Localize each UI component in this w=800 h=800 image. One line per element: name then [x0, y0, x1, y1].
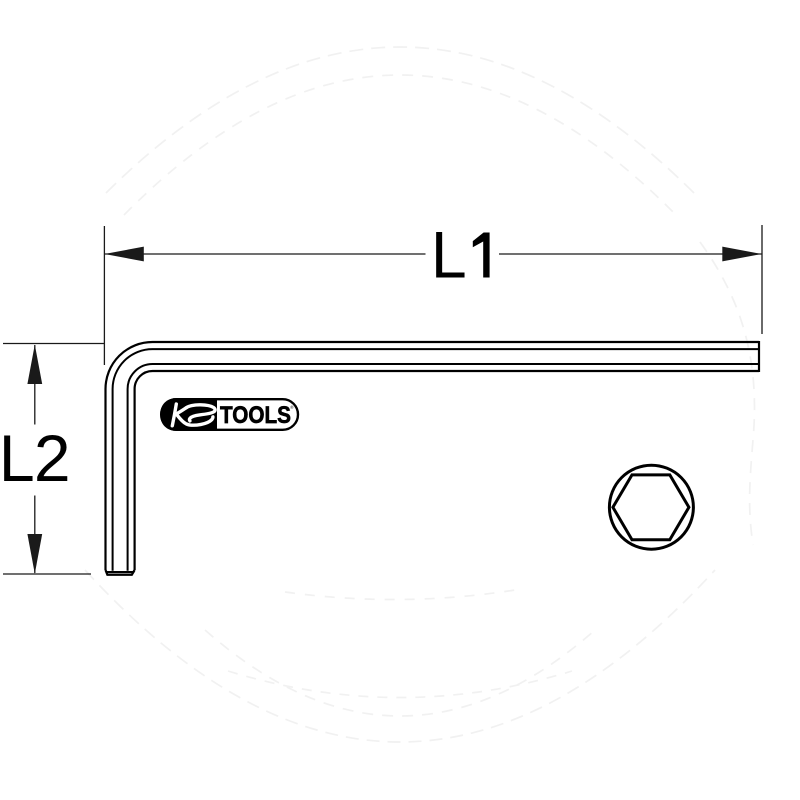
svg-text:2: 2 — [34, 421, 71, 495]
svg-text:L: L — [0, 421, 35, 495]
svg-text:TOOLS: TOOLS — [220, 402, 291, 429]
svg-text:L: L — [431, 218, 467, 292]
